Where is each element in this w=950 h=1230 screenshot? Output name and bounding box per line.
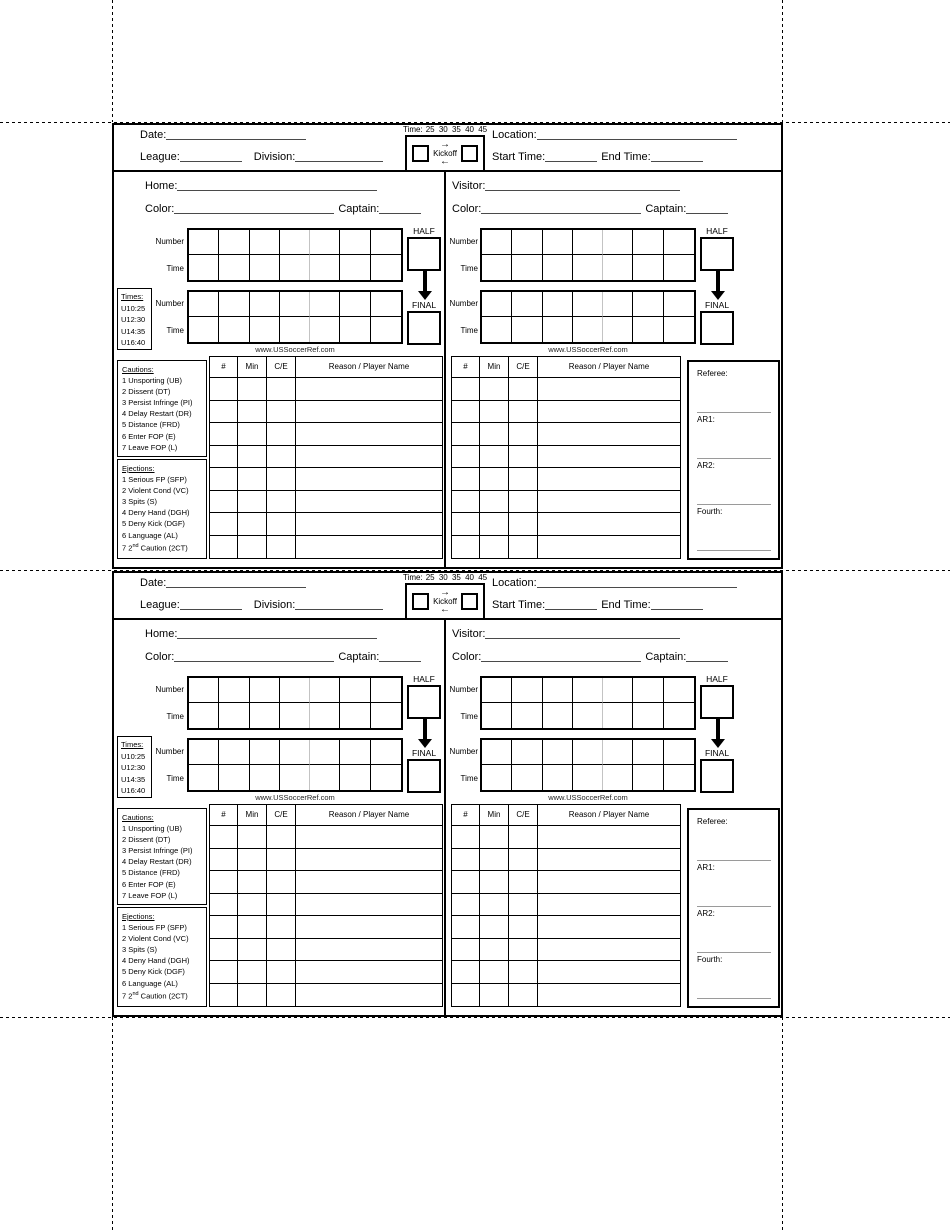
caution-item: 4 Delay Restart (DR) (122, 856, 202, 867)
color-label: Color: (145, 203, 174, 215)
misconduct-table-cell (267, 984, 296, 1007)
score-grid-cell (512, 255, 542, 280)
home-final-label: FINAL (406, 300, 442, 310)
misconduct-table-cell (296, 894, 442, 917)
ejection-item: 6 Language (AL) (122, 530, 202, 541)
misconduct-table-cell (210, 849, 238, 872)
score-grid-cell (573, 765, 603, 790)
misconduct-table-cell (210, 536, 238, 559)
kickoff-time-options-row: Time:25 30 35 40 45 (403, 573, 487, 582)
home-final-label: FINAL (406, 748, 442, 758)
misconduct-table-cell (296, 871, 442, 894)
score-grid-cell (280, 740, 310, 765)
fourth-official-field: Fourth: (697, 507, 770, 551)
cut-line-left-bottom (112, 1017, 113, 1230)
score-grid-cell (371, 703, 401, 728)
kickoff-center: → Kickoff ← (433, 589, 457, 614)
ejection-item: 1 Serious FP (SFP) (122, 474, 202, 485)
misconduct-table-cell (452, 984, 480, 1007)
score-grid-cell (280, 292, 310, 317)
league-blank-line (180, 599, 242, 610)
misconduct-table-cell (296, 849, 442, 872)
number-row-label: Number (148, 738, 184, 765)
score-grid-cell (280, 230, 310, 255)
score-grid-cell (512, 765, 542, 790)
date-label: Date: (140, 129, 166, 141)
column-header-minute: Min (238, 805, 267, 826)
score-grid-cell (189, 678, 219, 703)
misconduct-table-cell (267, 491, 296, 514)
misconduct-table-cell (538, 961, 680, 984)
cautions-legend-box: Cautions: 1 Unsporting (UB) 2 Dissent (D… (117, 808, 207, 905)
visitor-half-label: HALF (699, 226, 735, 236)
score-grid-cell (543, 703, 573, 728)
time-row-label: Time (442, 317, 478, 344)
misconduct-table-cell (509, 826, 538, 849)
ejection-item: 4 Deny Hand (DGH) (122, 507, 202, 518)
misconduct-table-cell (210, 446, 238, 469)
score-grid-cell (603, 317, 633, 342)
score-grid-cell (512, 740, 542, 765)
start-end-time-field: Start Time:End Time: (492, 151, 703, 164)
column-header-reason: Reason / Player Name (538, 805, 680, 826)
misconduct-table-cell (509, 849, 538, 872)
caution-item: 5 Distance (FRD) (122, 419, 202, 430)
misconduct-table-cell (538, 939, 680, 962)
times-entry: U16:40 (121, 337, 148, 349)
location-label: Location: (492, 129, 537, 141)
misconduct-table-cell (452, 894, 480, 917)
misconduct-table-cell (296, 826, 442, 849)
misconduct-table-cell (210, 378, 238, 401)
misconduct-table-cell (480, 916, 509, 939)
score-grid-cell (664, 678, 694, 703)
misconduct-table-cell (238, 984, 267, 1007)
captain-label: Captain: (338, 203, 379, 215)
times-entry: U14:35 (121, 326, 148, 338)
column-header-caution-ejection: C/E (267, 357, 296, 378)
score-grid-cell (219, 255, 249, 280)
score-grid-cell (573, 678, 603, 703)
misconduct-table-cell (296, 513, 442, 536)
number-row-label: Number (122, 676, 184, 703)
start-end-time-field: Start Time:End Time: (492, 599, 703, 612)
misconduct-table-cell (538, 491, 680, 514)
arrow-right-icon: → (440, 589, 450, 597)
number-row-label: Number (442, 676, 478, 703)
column-header-caution-ejection: C/E (509, 805, 538, 826)
misconduct-table-cell (480, 401, 509, 424)
location-blank-line (537, 577, 737, 588)
ejection-item: 2 Violent Cond (VC) (122, 485, 202, 496)
cut-line-right-bottom (782, 1017, 783, 1230)
half-to-final-arrowhead-icon (418, 739, 432, 748)
misconduct-table-cell (267, 468, 296, 491)
visitor-color-captain-field: Color:Captain: (452, 651, 728, 664)
end-time-blank-line (651, 599, 703, 610)
misconduct-table-cell (267, 871, 296, 894)
score-grid-cell (219, 317, 249, 342)
caution-item: 5 Distance (FRD) (122, 867, 202, 878)
score-grid-cell (633, 255, 663, 280)
misconduct-table-cell (452, 849, 480, 872)
score-grid-cell (340, 292, 370, 317)
date-label: Date: (140, 577, 166, 589)
score-grid-cell (603, 230, 633, 255)
misconduct-table-cell (480, 984, 509, 1007)
ejections-legend-box: Ejections: 1 Serious FP (SFP) 2 Violent … (117, 907, 207, 1007)
date-field: Date: (140, 577, 306, 590)
location-field: Location: (492, 577, 737, 590)
column-header-number: # (210, 357, 238, 378)
misconduct-table-cell (238, 826, 267, 849)
start-time-blank-line (545, 599, 597, 610)
score-grid-cell (633, 317, 663, 342)
visitor-blank-line (485, 180, 680, 191)
cautions-title: Cautions: (122, 364, 202, 375)
misconduct-table-cell (210, 423, 238, 446)
league-label: League: (140, 151, 180, 163)
misconduct-table-cell (509, 961, 538, 984)
misconduct-table-cell (452, 423, 480, 446)
score-grid-cell (482, 678, 512, 703)
misconduct-table-cell (210, 491, 238, 514)
caution-item: 4 Delay Restart (DR) (122, 408, 202, 419)
misconduct-table-cell (296, 491, 442, 514)
misconduct-table-cell (452, 536, 480, 559)
misconduct-table-cell (238, 513, 267, 536)
score-grid-cell (340, 230, 370, 255)
misconduct-table-cell (480, 536, 509, 559)
arrow-left-icon: ← (440, 158, 450, 166)
score-grid-cell (219, 703, 249, 728)
column-header-reason: Reason / Player Name (296, 805, 442, 826)
home-score-grid-first-half (187, 676, 403, 730)
score-grid-cell (310, 678, 340, 703)
misconduct-table-cell (452, 871, 480, 894)
color-label: Color: (145, 651, 174, 663)
misconduct-table-cell (509, 378, 538, 401)
visitor-score-grid-first-half (480, 676, 696, 730)
misconduct-table-cell (296, 468, 442, 491)
misconduct-table-cell (210, 939, 238, 962)
ejection-item: 4 Deny Hand (DGH) (122, 955, 202, 966)
misconduct-table-cell (538, 984, 680, 1007)
website-url: www.USSoccerRef.com (187, 345, 403, 354)
misconduct-table-cell (452, 513, 480, 536)
color-label: Color: (452, 203, 481, 215)
home-misconduct-table: # Min C/E Reason / Player Name (209, 804, 443, 1007)
score-grid-cell (633, 740, 663, 765)
visitor-final-label: FINAL (699, 300, 735, 310)
kickoff-checkbox-left (412, 593, 429, 610)
caution-item: 2 Dissent (DT) (122, 834, 202, 845)
fourth-official-label: Fourth: (697, 507, 770, 516)
times-entry: U12:30 (121, 314, 148, 326)
misconduct-table-cell (296, 984, 442, 1007)
times-entry: U10:25 (121, 303, 148, 315)
score-grid-cell (573, 255, 603, 280)
caution-item: 3 Persist Infringe (PI) (122, 845, 202, 856)
misconduct-table-cell (480, 894, 509, 917)
score-grid-cell (189, 740, 219, 765)
half-to-final-arrowhead-icon (418, 291, 432, 300)
visitor-final-score-box (700, 759, 734, 793)
score-grid-cell (310, 292, 340, 317)
times-entry: U14:35 (121, 774, 148, 786)
ejection-item-text: Caution (2CT) (139, 543, 188, 552)
misconduct-table-cell (267, 513, 296, 536)
misconduct-table-cell (267, 423, 296, 446)
score-grid-cell (219, 230, 249, 255)
half-to-final-arrow-icon (716, 271, 720, 291)
visitor-label: Visitor: (452, 628, 485, 640)
score-grid-cell (340, 255, 370, 280)
misconduct-table-cell (210, 894, 238, 917)
time-row-label: Time (442, 703, 478, 730)
score-grid-cell (603, 765, 633, 790)
ar1-label: AR1: (697, 415, 770, 424)
score-grid-cell (512, 703, 542, 728)
kickoff-time-values: 25 30 35 40 45 (426, 125, 487, 134)
score-grid-cell (250, 292, 280, 317)
website-url: www.USSoccerRef.com (187, 793, 403, 802)
division-label: Division: (254, 151, 296, 163)
misconduct-table-cell (267, 894, 296, 917)
misconduct-table-cell (480, 871, 509, 894)
misconduct-table-cell (509, 423, 538, 446)
home-score-grid-first-half (187, 228, 403, 282)
score-grid-cell (512, 292, 542, 317)
score-grid-cell (664, 765, 694, 790)
misconduct-table-cell (452, 468, 480, 491)
misconduct-table-cell (538, 536, 680, 559)
misconduct-table-cell (509, 916, 538, 939)
visitor-misconduct-table: # Min C/E Reason / Player Name (451, 356, 681, 559)
fourth-official-blank-line (697, 998, 771, 999)
home-color-captain-field: Color:Captain: (145, 651, 421, 664)
misconduct-table-cell (480, 491, 509, 514)
misconduct-table-cell (509, 513, 538, 536)
score-grid-cell (371, 765, 401, 790)
misconduct-table-cell (267, 401, 296, 424)
captain-blank-line (686, 203, 728, 214)
kickoff-checkbox-right (461, 593, 478, 610)
ejection-item-text: 7 2 (122, 543, 132, 552)
visitor-final-score-box (700, 311, 734, 345)
captain-label: Captain: (645, 203, 686, 215)
misconduct-table-cell (210, 871, 238, 894)
caution-item: 1 Unsporting (UB) (122, 823, 202, 834)
caution-item: 7 Leave FOP (L) (122, 890, 202, 901)
score-grid-cell (280, 765, 310, 790)
misconduct-table-cell (538, 849, 680, 872)
cautions-title: Cautions: (122, 812, 202, 823)
misconduct-table-cell (238, 401, 267, 424)
ar1-label: AR1: (697, 863, 770, 872)
score-grid-cell (250, 740, 280, 765)
misconduct-table-cell (238, 894, 267, 917)
ar2-label: AR2: (697, 909, 770, 918)
misconduct-table-cell (238, 468, 267, 491)
misconduct-table-cell (452, 916, 480, 939)
half-to-final-arrow-icon (716, 719, 720, 739)
score-grid-cell (250, 230, 280, 255)
misconduct-table-cell (538, 468, 680, 491)
misconduct-table-cell (509, 401, 538, 424)
misconduct-table-cell (452, 446, 480, 469)
end-time-label: End Time: (601, 599, 651, 611)
ar2-blank-line (697, 952, 771, 953)
score-grid-cell (189, 255, 219, 280)
score-grid-cell (250, 765, 280, 790)
home-blank-line (177, 628, 377, 639)
location-field: Location: (492, 129, 737, 142)
misconduct-table-cell (267, 378, 296, 401)
visitor-half-score-box (700, 685, 734, 719)
caution-item: 7 Leave FOP (L) (122, 442, 202, 453)
home-final-score-box (407, 311, 441, 345)
misconduct-table-cell (480, 513, 509, 536)
misconduct-table-cell (267, 916, 296, 939)
visitor-color-captain-field: Color:Captain: (452, 203, 728, 216)
misconduct-table-cell (509, 536, 538, 559)
ejections-title: Ejections: (122, 911, 202, 922)
misconduct-table-cell (538, 423, 680, 446)
misconduct-table-cell (538, 513, 680, 536)
score-grid-cell (250, 703, 280, 728)
ejections-legend-box: Ejections: 1 Serious FP (SFP) 2 Violent … (117, 459, 207, 559)
score-grid-cell (280, 317, 310, 342)
score-grid-cell (219, 678, 249, 703)
home-half-label: HALF (406, 674, 442, 684)
ar2-blank-line (697, 504, 771, 505)
home-team-field: Home: (145, 628, 377, 641)
visitor-score-grid-second-half (480, 738, 696, 792)
column-header-caution-ejection: C/E (509, 357, 538, 378)
misconduct-table-cell (509, 446, 538, 469)
date-field: Date: (140, 129, 306, 142)
ejection-item: 6 Language (AL) (122, 978, 202, 989)
misconduct-table-cell (296, 423, 442, 446)
score-grid-cell (340, 678, 370, 703)
misconduct-table-cell (452, 491, 480, 514)
score-grid-cell (371, 292, 401, 317)
referee-field: Referee: (697, 369, 770, 413)
website-url: www.USSoccerRef.com (480, 793, 696, 802)
visitor-score-grid-first-half (480, 228, 696, 282)
score-grid-cell (310, 765, 340, 790)
location-label: Location: (492, 577, 537, 589)
visitor-blank-line (485, 628, 680, 639)
cut-line-left-top (112, 0, 113, 122)
date-blank-line (166, 577, 306, 588)
website-url: www.USSoccerRef.com (480, 345, 696, 354)
misconduct-table-cell (267, 939, 296, 962)
number-row-label: Number (148, 290, 184, 317)
home-label: Home: (145, 180, 177, 192)
captain-label: Captain: (645, 651, 686, 663)
score-grid-cell (340, 765, 370, 790)
score-grid-cell (482, 230, 512, 255)
misconduct-table-cell (296, 536, 442, 559)
misconduct-table-cell (210, 513, 238, 536)
visitor-half-label: HALF (699, 674, 735, 684)
score-grid-cell (280, 255, 310, 280)
score-grid-cell (664, 255, 694, 280)
score-grid-cell (371, 255, 401, 280)
ar1-blank-line (697, 458, 771, 459)
time-row-label: Time (148, 765, 184, 792)
kickoff-box: → Kickoff ← (405, 583, 485, 620)
misconduct-table-cell (452, 961, 480, 984)
column-header-caution-ejection: C/E (267, 805, 296, 826)
misconduct-table-cell (238, 423, 267, 446)
times-entry: U16:40 (121, 785, 148, 797)
half-to-final-arrow-icon (423, 271, 427, 291)
league-division-field: League:Division: (140, 599, 383, 612)
misconduct-table-cell (267, 961, 296, 984)
score-grid-cell (603, 678, 633, 703)
kickoff-checkbox-left (412, 145, 429, 162)
captain-blank-line (686, 651, 728, 662)
ejection-item: 3 Spits (S) (122, 496, 202, 507)
kickoff-center: → Kickoff ← (433, 141, 457, 166)
ar1-field: AR1: (697, 415, 770, 459)
ejection-item-text: Caution (2CT) (139, 991, 188, 1000)
score-grid-cell (219, 740, 249, 765)
misconduct-table-cell (238, 491, 267, 514)
score-grid-cell (219, 765, 249, 790)
score-grid-cell (633, 678, 663, 703)
score-grid-cell (543, 255, 573, 280)
captain-blank-line (379, 203, 421, 214)
misconduct-table-cell (538, 894, 680, 917)
score-grid-cell (664, 230, 694, 255)
time-row-label: Time (442, 765, 478, 792)
misconduct-table-cell (238, 916, 267, 939)
score-grid-cell (340, 703, 370, 728)
half-to-final-arrowhead-icon (711, 739, 725, 748)
score-grid-cell (543, 740, 573, 765)
score-grid-cell (543, 765, 573, 790)
misconduct-table-cell (296, 401, 442, 424)
score-grid-cell (482, 292, 512, 317)
visitor-final-label: FINAL (699, 748, 735, 758)
arrow-left-icon: ← (440, 606, 450, 614)
column-header-minute: Min (480, 805, 509, 826)
visitor-misconduct-table: # Min C/E Reason / Player Name (451, 804, 681, 1007)
start-time-blank-line (545, 151, 597, 162)
score-grid-cell (280, 703, 310, 728)
time-row-label: Time (122, 255, 184, 282)
color-blank-line (174, 651, 334, 662)
misconduct-table-cell (210, 961, 238, 984)
printable-game-card-sheet: { "card": { "header": { "date_label": "D… (0, 0, 950, 1230)
home-color-captain-field: Color:Captain: (145, 203, 421, 216)
referee-field: Referee: (697, 817, 770, 861)
score-grid-cell (603, 255, 633, 280)
ejection-item: 2 Violent Cond (VC) (122, 933, 202, 944)
score-grid-cell (250, 678, 280, 703)
score-grid-cell (543, 678, 573, 703)
score-grid-cell (280, 678, 310, 703)
league-division-field: League:Division: (140, 151, 383, 164)
number-row-label: Number (442, 228, 478, 255)
score-grid-cell (512, 678, 542, 703)
score-grid-cell (482, 317, 512, 342)
home-score-grid-second-half (187, 738, 403, 792)
